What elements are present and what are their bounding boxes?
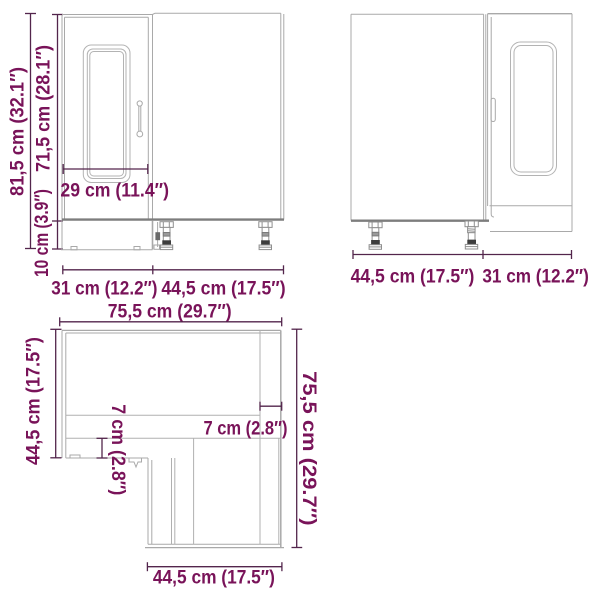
svg-text:44,5 cm (17.5″): 44,5 cm (17.5″) [23, 337, 45, 465]
svg-text:75,5 cm (29.7″): 75,5 cm (29.7″) [108, 301, 232, 323]
svg-text:44,5 cm (17.5″): 44,5 cm (17.5″) [351, 265, 475, 287]
svg-text:71,5 cm (28.1″): 71,5 cm (28.1″) [33, 45, 55, 172]
svg-text:44,5 cm (17.5″): 44,5 cm (17.5″) [153, 567, 275, 589]
svg-text:81,5 cm (32.1″): 81,5 cm (32.1″) [7, 67, 29, 196]
svg-text:75,5 cm (29.7″): 75,5 cm (29.7″) [298, 371, 320, 526]
svg-text:44,5 cm (17.5″): 44,5 cm (17.5″) [161, 277, 285, 299]
svg-text:7 cm (2.8″): 7 cm (2.8″) [107, 404, 129, 495]
svg-text:31 cm (12.2″): 31 cm (12.2″) [482, 265, 589, 287]
svg-text:29 cm (11.4″): 29 cm (11.4″) [60, 180, 169, 202]
svg-text:10 cm (3.9″): 10 cm (3.9″) [31, 189, 53, 277]
svg-text:7 cm (2.8″): 7 cm (2.8″) [203, 418, 287, 440]
svg-text:31 cm (12.2″): 31 cm (12.2″) [51, 277, 157, 299]
